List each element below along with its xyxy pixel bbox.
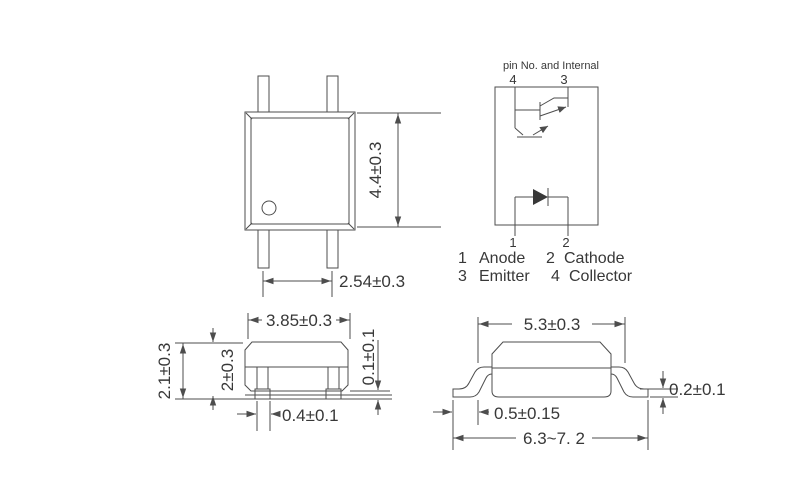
diode-triangle bbox=[533, 189, 548, 205]
right-leg bbox=[328, 367, 339, 389]
package-body-inner bbox=[251, 118, 349, 224]
dim-side-body-height: 2±0.3 bbox=[218, 349, 237, 391]
internal-circuit-diagram: pin No. and Internal 4 3 1 2 1 bbox=[458, 60, 633, 285]
pin-number-1: 1 bbox=[509, 235, 516, 250]
dim-foot-length: 0.5±0.15 bbox=[494, 404, 560, 423]
legend-pin-3-number: 3 bbox=[458, 268, 467, 285]
legend-pin-1-function: Anode bbox=[479, 250, 525, 267]
pin-bottom-right bbox=[327, 230, 338, 268]
dim-lead-thickness: 0.2±0.1 bbox=[669, 380, 726, 399]
extension-lines-foot-length bbox=[453, 400, 478, 450]
bottom-pin-stubs bbox=[515, 225, 568, 236]
legend-pin-3-function: Emitter bbox=[479, 268, 530, 285]
pin-number-2: 2 bbox=[562, 235, 569, 250]
top-view: 4.4±0.3 2.54±0.3 bbox=[245, 76, 441, 297]
right-gullwing-lead bbox=[611, 367, 648, 397]
pin-top-right bbox=[327, 76, 338, 112]
internal-diagram-title: pin No. and Internal bbox=[503, 60, 599, 72]
dim-top-view-body-height: 4.4±0.3 bbox=[366, 142, 385, 199]
darlington-transistor-pair-icon bbox=[515, 87, 568, 137]
front-body-outline bbox=[492, 342, 611, 397]
pin-function-legend: 1 Anode 2 Cathode 3 Emitter 4 Collector bbox=[458, 250, 633, 285]
legend-pin-2-function: Cathode bbox=[564, 250, 625, 267]
body-corner-chamfers bbox=[246, 113, 354, 229]
dim-pin-pitch: 2.54±0.3 bbox=[339, 272, 405, 291]
circuit-box bbox=[495, 87, 598, 225]
legend-pin-2-number: 2 bbox=[546, 250, 555, 267]
pin-bottom-left bbox=[258, 230, 269, 268]
drawing-canvas: 4.4±0.3 2.54±0.3 pin No. and Internal 4 … bbox=[0, 0, 810, 489]
dim-overall-span: 6.3~7. 2 bbox=[523, 429, 585, 448]
extension-lines-lead-width bbox=[257, 401, 270, 431]
left-leg bbox=[257, 367, 268, 389]
pin1-indicator-dot bbox=[262, 201, 276, 215]
legend-pin-1-number: 1 bbox=[458, 250, 467, 267]
emitter-arrow-t1 bbox=[540, 107, 566, 116]
seating-plane-lines bbox=[175, 395, 392, 399]
legend-pin-4-number: 4 bbox=[551, 268, 560, 285]
dim-front-body-width: 5.3±0.3 bbox=[524, 315, 581, 334]
side-view: 3.85±0.3 2.1±0.3 2±0.3 0.1±0.1 0.4±0.1 bbox=[155, 311, 392, 431]
led-diode-icon bbox=[515, 188, 568, 225]
emitter-arrow-t2 bbox=[533, 126, 548, 135]
dim-side-body-width: 3.85±0.3 bbox=[266, 311, 332, 330]
legend-pin-4-function: Collector bbox=[569, 268, 633, 285]
dim-standoff: 0.1±0.1 bbox=[359, 329, 378, 386]
left-gullwing-lead bbox=[453, 367, 492, 397]
dim-lead-width: 0.4±0.1 bbox=[282, 406, 339, 425]
package-outline-drawing: 4.4±0.3 2.54±0.3 pin No. and Internal 4 … bbox=[0, 0, 810, 489]
dim-side-total-height: 2.1±0.3 bbox=[155, 343, 174, 400]
extension-lines-pin-pitch bbox=[263, 271, 332, 297]
pin-number-3: 3 bbox=[560, 72, 567, 87]
package-body-outer bbox=[245, 112, 355, 230]
pin-top-left bbox=[258, 76, 269, 112]
front-view: 5.3±0.3 0.5±0.15 0.2±0.1 6.3~7. 2 bbox=[433, 315, 726, 450]
pin-number-4: 4 bbox=[509, 72, 516, 87]
